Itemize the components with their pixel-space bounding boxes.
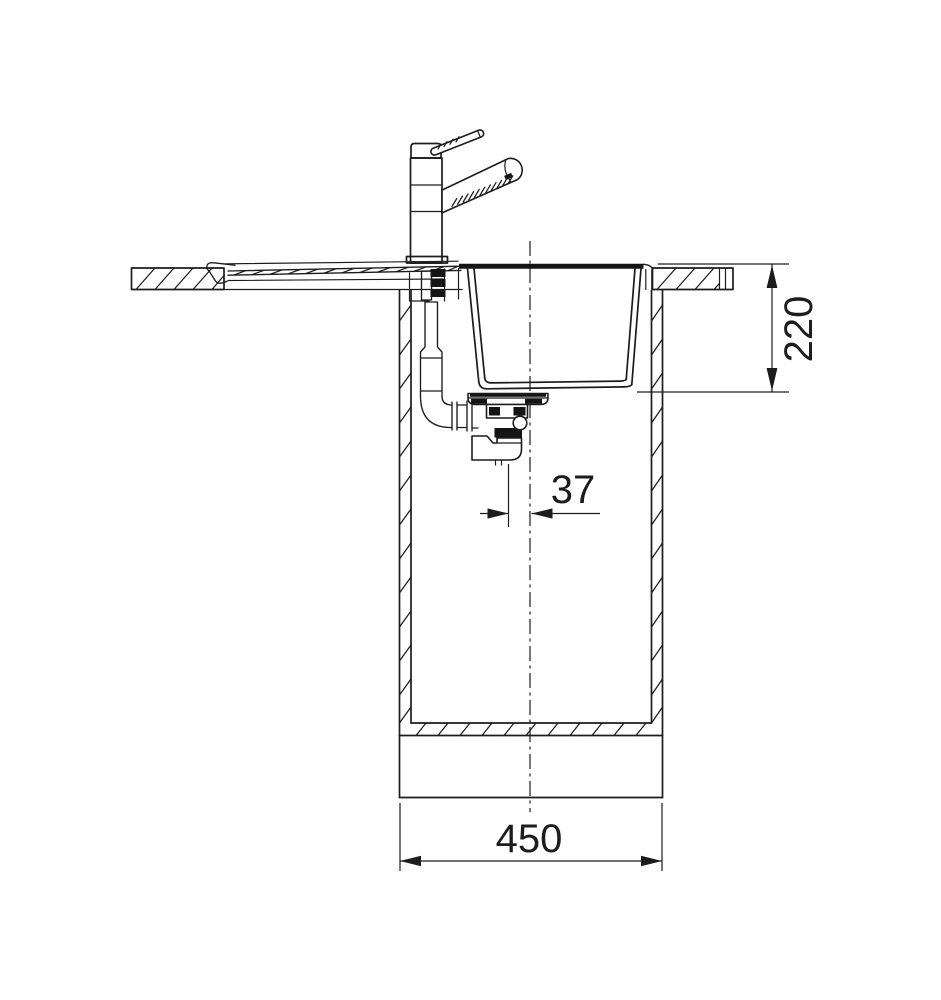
drain-elbow — [472, 436, 522, 460]
faucet-spout — [442, 158, 522, 213]
drainboard — [224, 261, 462, 301]
dimension-cabinet-width-label: 450 — [496, 817, 563, 861]
dimension-cabinet-width: 450 — [400, 803, 662, 871]
dimension-drain-offset-label: 37 — [551, 468, 596, 512]
faucet-handle — [431, 130, 484, 155]
countertop-right — [644, 264, 734, 289]
trap-nut — [513, 416, 527, 430]
dimension-depth: 220 — [637, 264, 821, 392]
sink-lip-right — [644, 264, 653, 268]
dimension-drain-offset: 37 — [480, 464, 600, 527]
drain-assembly — [468, 394, 548, 466]
dimension-depth-label: 220 — [777, 296, 821, 363]
countertop-left — [132, 263, 236, 290]
sink-installation-drawing: 220 37 450 — [0, 0, 941, 1000]
faucet — [407, 130, 523, 263]
sink-bowl — [459, 266, 644, 389]
aerator — [505, 175, 512, 178]
overflow-pipe — [410, 269, 479, 431]
cabinet — [400, 291, 663, 798]
